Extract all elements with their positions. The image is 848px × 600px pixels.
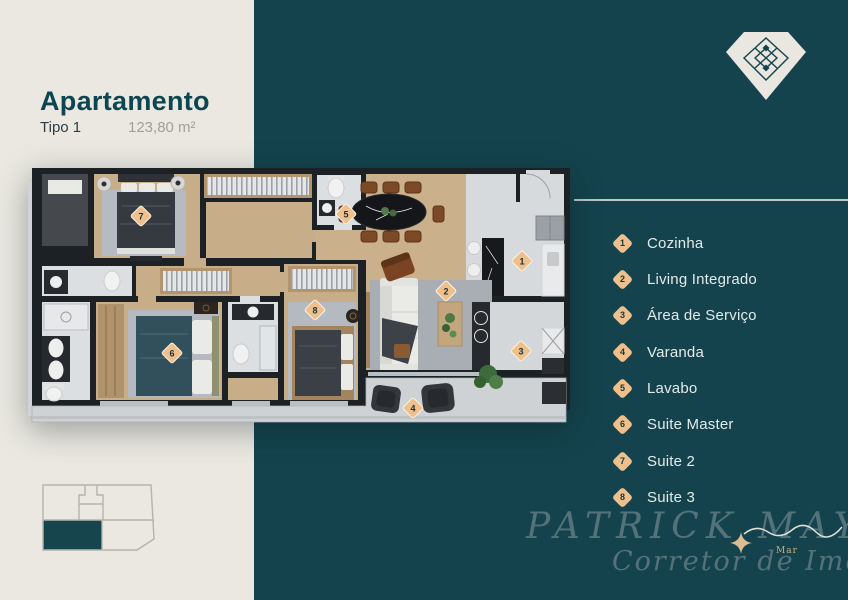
svg-text:1: 1 [519, 257, 524, 267]
toilet [328, 178, 344, 198]
svg-text:8: 8 [312, 306, 317, 316]
brand-logo diamond-gem-icon [722, 28, 810, 106]
side-table [346, 309, 360, 323]
legend-item-living: 2Living Integrado [612, 268, 757, 290]
tv-panel [366, 292, 370, 368]
legend-item-cozinha: 1Cozinha [612, 232, 757, 254]
svg-text:3: 3 [518, 347, 523, 357]
wardrobe-top [204, 174, 312, 198]
suite-2-hall-floor [206, 202, 312, 258]
living-window [368, 372, 490, 376]
flyer-page: { "header": { "title": "Apartamento", "t… [0, 0, 848, 600]
highlighted-unit [43, 520, 102, 550]
coffee-table [438, 302, 462, 346]
suite-3-room [280, 260, 366, 400]
legend-item-lavabo: 5Lavabo [612, 378, 757, 400]
legend-marker-diamond: 7 [612, 451, 633, 472]
kitchen-counter [542, 244, 564, 296]
legend-marker-diamond: 2 [612, 269, 633, 290]
svg-text:7: 7 [138, 212, 143, 222]
entry-wall-stub [516, 174, 520, 202]
balcony-chair [370, 384, 401, 414]
suite-3-bathroom [228, 302, 278, 400]
balcony-railing [32, 416, 566, 419]
service-area [472, 302, 564, 374]
legend-item-suite-2: 7Suite 2 [612, 450, 757, 472]
legend-divider-line [574, 199, 848, 201]
room-legend: 1Cozinha 2Living Integrado 3Área de Serv… [612, 232, 757, 523]
legend-item-servico: 3Área de Serviço [612, 305, 757, 327]
door-gap [240, 296, 260, 302]
floor-plan: 1 2 3 4 5 6 7 8 [28, 168, 570, 428]
door-gap [184, 258, 206, 266]
legend-marker-diamond: 4 [612, 342, 633, 363]
suite-2-bathroom [42, 266, 132, 296]
door-gap [138, 296, 156, 302]
ac-unit [542, 382, 566, 404]
closet-room [42, 174, 88, 246]
legend-marker-diamond: 6 [612, 414, 633, 435]
legend-item-varanda: 4Varanda [612, 341, 757, 363]
door-gap [334, 225, 352, 230]
sofa-cushion [394, 344, 410, 358]
master-wardrobe [98, 304, 124, 398]
headboard [212, 316, 219, 396]
svg-text:5: 5 [343, 210, 348, 220]
kitchen-sink [547, 252, 559, 266]
legend-marker-diamond: 5 [612, 378, 633, 399]
door-gap [280, 272, 284, 292]
toilet [104, 271, 120, 291]
suite-3-bed [295, 330, 341, 396]
dining-table [352, 194, 426, 230]
suite-2-pillows [121, 183, 173, 192]
building-keyplan [40, 482, 162, 558]
svg-text:6: 6 [169, 349, 174, 359]
sea-wave-icon [742, 516, 846, 544]
legend-marker-diamond: 1 [612, 232, 633, 253]
apartment-area-value: 123,80 m² [128, 119, 196, 136]
shower [260, 326, 276, 370]
svg-text:4: 4 [410, 404, 415, 414]
suite-master-room [96, 302, 222, 400]
shower [44, 304, 88, 330]
toilet [46, 387, 62, 401]
watermark-tagline: Mar [776, 546, 798, 556]
svg-text:2: 2 [443, 287, 448, 297]
master-bathroom [42, 302, 90, 401]
nightstand [194, 302, 218, 314]
toilet [233, 344, 249, 364]
legend-marker-diamond: 3 [612, 305, 633, 326]
page-title: Apartamento [40, 86, 210, 117]
suite-2-headboard [118, 174, 174, 182]
legend-item-suite-master: 6Suite Master [612, 414, 757, 436]
entry-door-gap [526, 170, 550, 174]
apartment-type-label: Tipo 1 [40, 119, 81, 136]
balcony-chair [421, 382, 456, 413]
